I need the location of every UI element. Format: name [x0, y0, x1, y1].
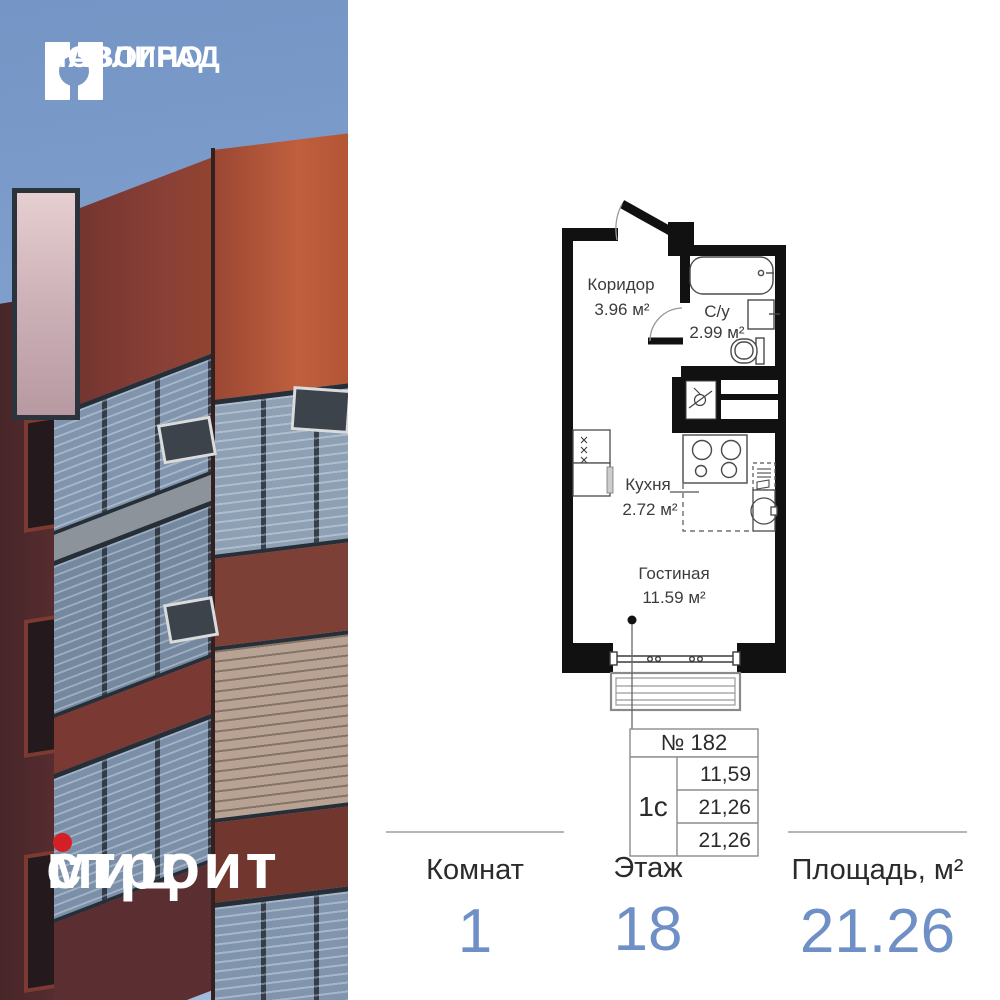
spec-rooms: Комнат 1: [386, 831, 564, 967]
unit-area-row-1: 11,59: [700, 763, 751, 786]
bathtub: [690, 257, 774, 294]
room-area-living: 11.59 м²: [642, 588, 706, 607]
unit-number: № 182: [661, 730, 727, 755]
facade-band: [213, 542, 348, 647]
room-area-kitchen: 2.72 м²: [622, 500, 677, 519]
entrance-door: [616, 204, 672, 240]
vent-panel: [163, 596, 219, 644]
spec-area-value: 21.26: [788, 897, 967, 967]
brand-dot-icon: [53, 833, 72, 852]
unit-area-row-2: 21,26: [698, 796, 751, 819]
unit-layout-type: 1с: [638, 791, 668, 822]
living-room-window: [610, 652, 740, 665]
bathroom-door: [648, 308, 683, 341]
room-area-corridor: 3.96 м²: [594, 300, 649, 319]
stove: [683, 435, 747, 483]
room-label-living: Гостиная: [638, 564, 709, 583]
spec-floor: Этаж 18: [571, 831, 725, 965]
developer-logo: миц строит: [46, 833, 280, 900]
balcony: [611, 673, 740, 710]
corner-curtain-window: [12, 188, 80, 420]
dish-rack: [757, 469, 771, 489]
spec-floor-label: Этаж: [571, 851, 725, 885]
kitchen-cabinet: [573, 463, 613, 496]
room-area-bathroom: 2.99 м²: [689, 323, 744, 342]
building-photo: НОВОГРАД ПАВЛИНО миц строит: [0, 0, 348, 1000]
glazed-balcony-band: [213, 886, 348, 1000]
apartment-listing-card[interactable]: НОВОГРАД ПАВЛИНО миц строит: [0, 0, 1000, 1000]
spec-area-label: Площадь, м²: [788, 853, 967, 887]
spec-area: Площадь, м² 21.26: [788, 831, 967, 967]
project-logo: НОВОГРАД ПАВЛИНО: [45, 42, 103, 100]
room-label-corridor: Коридор: [587, 275, 654, 294]
spec-rooms-value: 1: [386, 897, 564, 967]
facade-band: [213, 133, 348, 400]
spec-rooms-label: Комнат: [386, 853, 564, 887]
spec-floor-value: 18: [571, 895, 725, 965]
project-name-line2: ПАВЛИНО: [45, 42, 204, 73]
room-label-bathroom: С/у: [704, 302, 730, 321]
room-label-kitchen: Кухня: [625, 475, 671, 494]
fridge: [573, 430, 610, 463]
washing-machine: [751, 490, 777, 531]
shutter-band: [213, 630, 348, 823]
vent-panel: [291, 386, 348, 434]
